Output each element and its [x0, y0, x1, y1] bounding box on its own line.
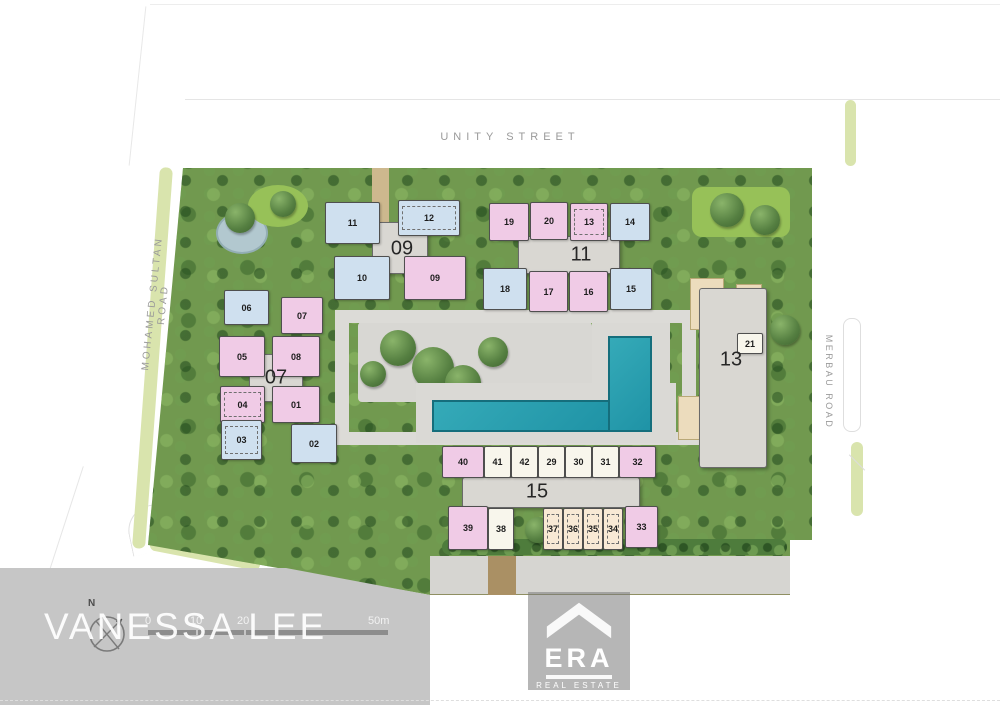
block-15-core [462, 477, 640, 508]
era-divider [546, 675, 612, 679]
unit-number: 31 [600, 457, 610, 467]
unit-37: 37 [543, 508, 563, 550]
era-brand-text: ERA [528, 643, 630, 674]
unit-number: 30 [573, 457, 583, 467]
unit-17: 17 [529, 271, 568, 312]
block-13-core [699, 288, 767, 468]
unit-number: 35 [588, 524, 598, 534]
unit-number: 36 [568, 524, 578, 534]
block-15-label: 15 [526, 481, 548, 504]
unit-39: 39 [448, 506, 488, 550]
unit-36: 36 [563, 508, 583, 550]
unit-number: 10 [357, 273, 367, 283]
unit-number: 14 [625, 217, 635, 227]
unit-number: 29 [546, 457, 556, 467]
unit-29: 29 [538, 446, 565, 478]
unit-42: 42 [511, 446, 538, 478]
unit-number: 06 [241, 303, 251, 313]
unit-number: 07 [297, 311, 307, 321]
unit-02: 02 [291, 424, 337, 463]
unit-number: 03 [236, 435, 246, 445]
unit-number: 13 [584, 217, 594, 227]
block-09-label: 09 [391, 238, 413, 261]
unit-03: 03 [221, 420, 262, 460]
unit-number: 18 [500, 284, 510, 294]
unit-19: 19 [489, 203, 529, 241]
unit-18: 18 [483, 268, 527, 310]
bottom-dashed-line [0, 700, 1000, 701]
unit-40: 40 [442, 446, 484, 478]
unit-number: 21 [745, 339, 755, 349]
unit-number: 12 [424, 213, 434, 223]
unit-14: 14 [610, 203, 650, 241]
unit-number: 39 [463, 523, 473, 533]
unit-32: 32 [619, 446, 656, 478]
unit-38: 38 [488, 508, 514, 550]
unit-15: 15 [610, 268, 652, 310]
unit-number: 17 [543, 287, 553, 297]
unit-20: 20 [530, 202, 568, 240]
unit-06: 06 [224, 290, 269, 325]
block-07-label: 07 [265, 367, 287, 390]
unit-09: 09 [404, 256, 466, 300]
unit-number: 32 [632, 457, 642, 467]
unit-34: 34 [603, 508, 623, 550]
unit-11: 11 [325, 202, 380, 244]
unit-35: 35 [583, 508, 603, 550]
unit-number: 08 [291, 352, 301, 362]
unit-number: 01 [291, 400, 301, 410]
era-roof-icon [537, 596, 621, 640]
unit-number: 05 [237, 352, 247, 362]
unit-number: 33 [636, 522, 646, 532]
unit-30: 30 [565, 446, 592, 478]
scale-tick-50m: 50m [368, 615, 389, 627]
unit-number: 20 [544, 216, 554, 226]
unit-41: 41 [484, 446, 511, 478]
era-tagline-text: REAL ESTATE [528, 681, 630, 690]
unit-number: 40 [458, 457, 468, 467]
merbau-road-label: MERBAU ROAD [824, 327, 834, 437]
unit-number: 41 [492, 457, 502, 467]
block-13-label: 13 [720, 349, 742, 372]
unit-05: 05 [219, 336, 265, 377]
unit-number: 38 [496, 524, 506, 534]
unit-number: 16 [583, 287, 593, 297]
unit-number: 42 [519, 457, 529, 467]
unit-12: 12 [398, 200, 460, 236]
unit-16: 16 [569, 271, 608, 312]
unit-number: 34 [608, 524, 618, 534]
unit-number: 19 [504, 217, 514, 227]
unit-number: 09 [430, 273, 440, 283]
unit-01: 01 [272, 386, 320, 423]
block-11-core [518, 236, 620, 274]
unit-04: 04 [220, 386, 265, 423]
unit-07: 07 [281, 297, 323, 334]
unit-number: 37 [548, 524, 558, 534]
unit-number: 11 [348, 218, 358, 228]
unity-street-label: UNITY STREET [430, 131, 590, 143]
unit-31: 31 [592, 446, 619, 478]
unit-33: 33 [625, 506, 658, 548]
unit-number: 15 [626, 284, 636, 294]
unit-13: 13 [570, 203, 608, 241]
unit-number: 02 [309, 439, 319, 449]
block-11-label: 11 [571, 244, 592, 267]
site-plan-canvas: UNITY STREET MOHAMED SULTAN ROAD MERBAU … [0, 0, 1000, 705]
unit-number: 04 [237, 400, 247, 410]
era-logo-panel: ERA REAL ESTATE [528, 592, 630, 690]
agent-watermark: VANESSA LEE [44, 606, 327, 648]
unit-10: 10 [334, 256, 390, 300]
